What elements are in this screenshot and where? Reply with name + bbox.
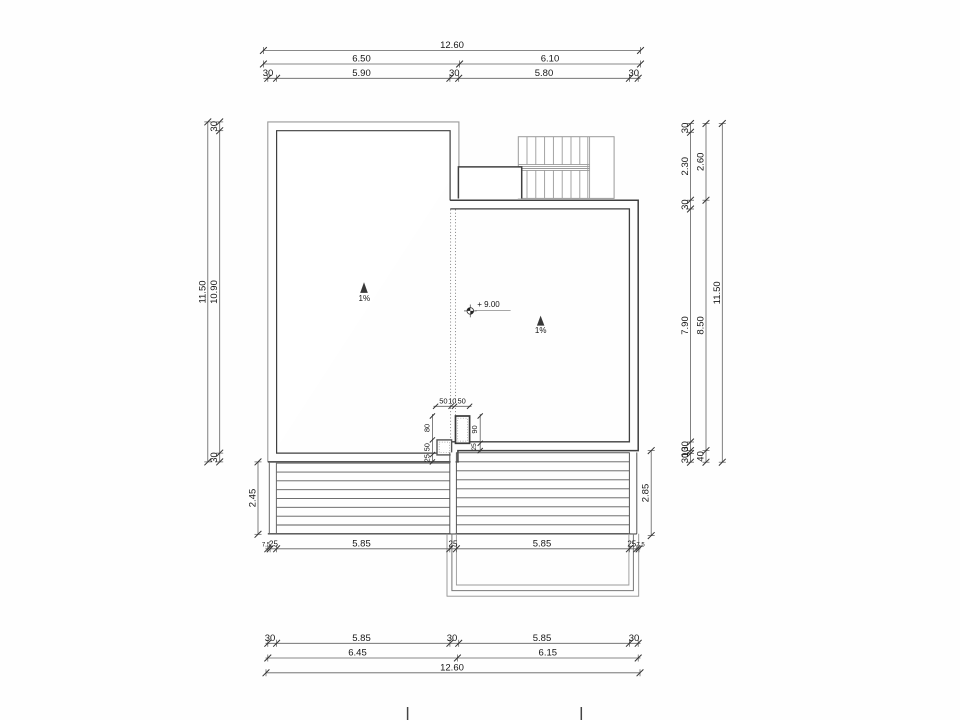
svg-text:5.85: 5.85 <box>533 633 552 644</box>
svg-text:50: 50 <box>458 396 466 405</box>
svg-text:30: 30 <box>263 68 274 79</box>
svg-text:50: 50 <box>422 443 431 451</box>
svg-text:2.45: 2.45 <box>248 489 259 508</box>
svg-text:6.45: 6.45 <box>348 648 367 659</box>
svg-text:5.80: 5.80 <box>535 68 554 79</box>
svg-text:30: 30 <box>629 633 640 644</box>
svg-text:40: 40 <box>696 451 707 462</box>
svg-text:90: 90 <box>470 425 479 433</box>
svg-text:2.85: 2.85 <box>641 484 652 503</box>
svg-text:7,5: 7,5 <box>636 542 645 548</box>
svg-text:25: 25 <box>449 539 458 548</box>
svg-text:8.50: 8.50 <box>696 316 707 335</box>
svg-text:10: 10 <box>448 396 456 405</box>
svg-text:7.90: 7.90 <box>680 316 691 335</box>
svg-text:1%: 1% <box>535 326 547 335</box>
svg-text:12.60: 12.60 <box>440 662 464 673</box>
svg-text:5.85: 5.85 <box>352 538 371 549</box>
svg-text:30: 30 <box>209 452 220 463</box>
svg-text:30: 30 <box>680 123 691 134</box>
svg-text:5.85: 5.85 <box>352 633 371 644</box>
svg-text:1%: 1% <box>359 294 371 303</box>
svg-text:5.85: 5.85 <box>533 538 552 549</box>
svg-text:6.10: 6.10 <box>541 54 560 65</box>
svg-text:+ 9.00: + 9.00 <box>477 300 500 309</box>
svg-text:30: 30 <box>629 68 640 79</box>
svg-text:30: 30 <box>449 68 460 79</box>
svg-text:80: 80 <box>422 424 431 432</box>
svg-text:30: 30 <box>209 121 220 132</box>
svg-text:30: 30 <box>680 453 691 464</box>
svg-text:50: 50 <box>439 396 447 405</box>
svg-text:11.50: 11.50 <box>197 280 208 303</box>
svg-text:30: 30 <box>680 199 691 210</box>
svg-text:12.60: 12.60 <box>440 40 464 51</box>
svg-text:11.50: 11.50 <box>712 281 723 304</box>
svg-text:25: 25 <box>269 539 278 548</box>
svg-text:6.50: 6.50 <box>352 54 371 65</box>
svg-text:2.60: 2.60 <box>696 153 707 172</box>
svg-text:25: 25 <box>471 443 478 451</box>
svg-text:25: 25 <box>422 454 431 462</box>
svg-text:2.30: 2.30 <box>680 157 691 176</box>
svg-text:5.90: 5.90 <box>352 68 371 79</box>
svg-text:6.15: 6.15 <box>539 648 558 659</box>
svg-text:30: 30 <box>265 633 276 644</box>
svg-text:30: 30 <box>447 633 458 644</box>
svg-text:10.90: 10.90 <box>209 280 220 304</box>
